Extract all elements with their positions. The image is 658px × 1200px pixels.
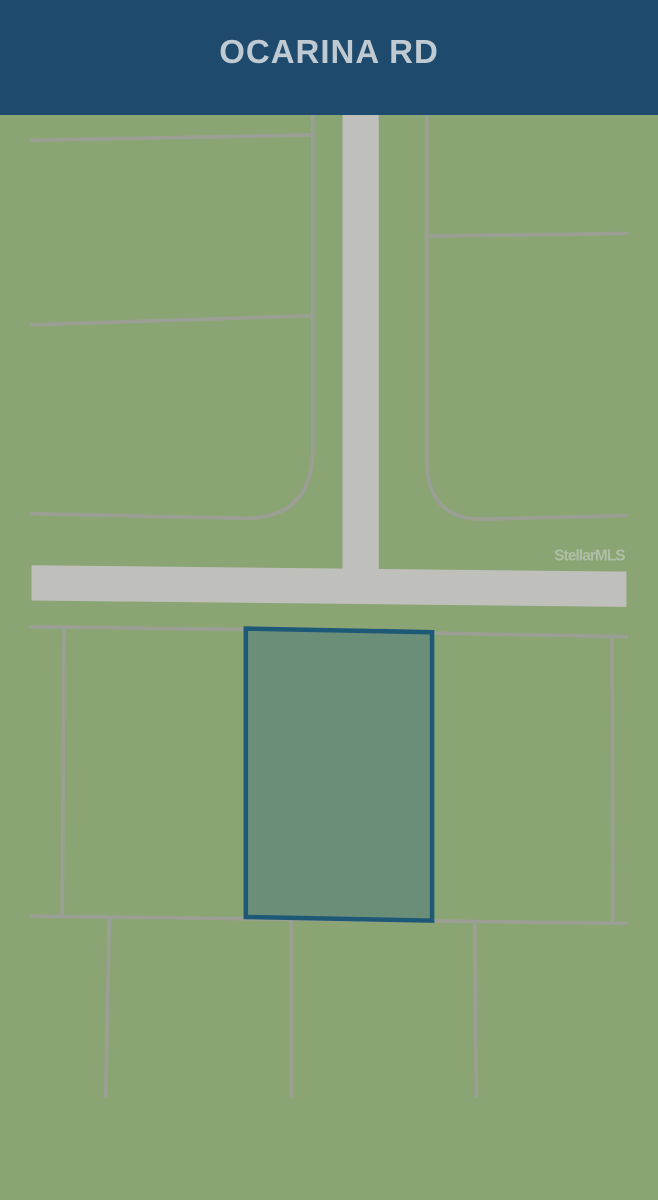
parcel-divider-line (62, 629, 64, 917)
parcel-divider-line (612, 639, 613, 921)
street-name-banner: OCARINA RD (0, 0, 658, 115)
vertical-road (343, 115, 379, 575)
parcel-map[interactable]: StellarMLS (0, 115, 658, 1200)
highlighted-parcel[interactable] (246, 629, 432, 921)
horizontal-road (32, 565, 627, 607)
stellar-mls-watermark: StellarMLS (554, 548, 625, 565)
street-name-label: OCARINA RD (219, 33, 439, 71)
parcel-divider-line (475, 922, 477, 1097)
listing-map-screenshot: OCARINA RD (0, 0, 658, 1200)
